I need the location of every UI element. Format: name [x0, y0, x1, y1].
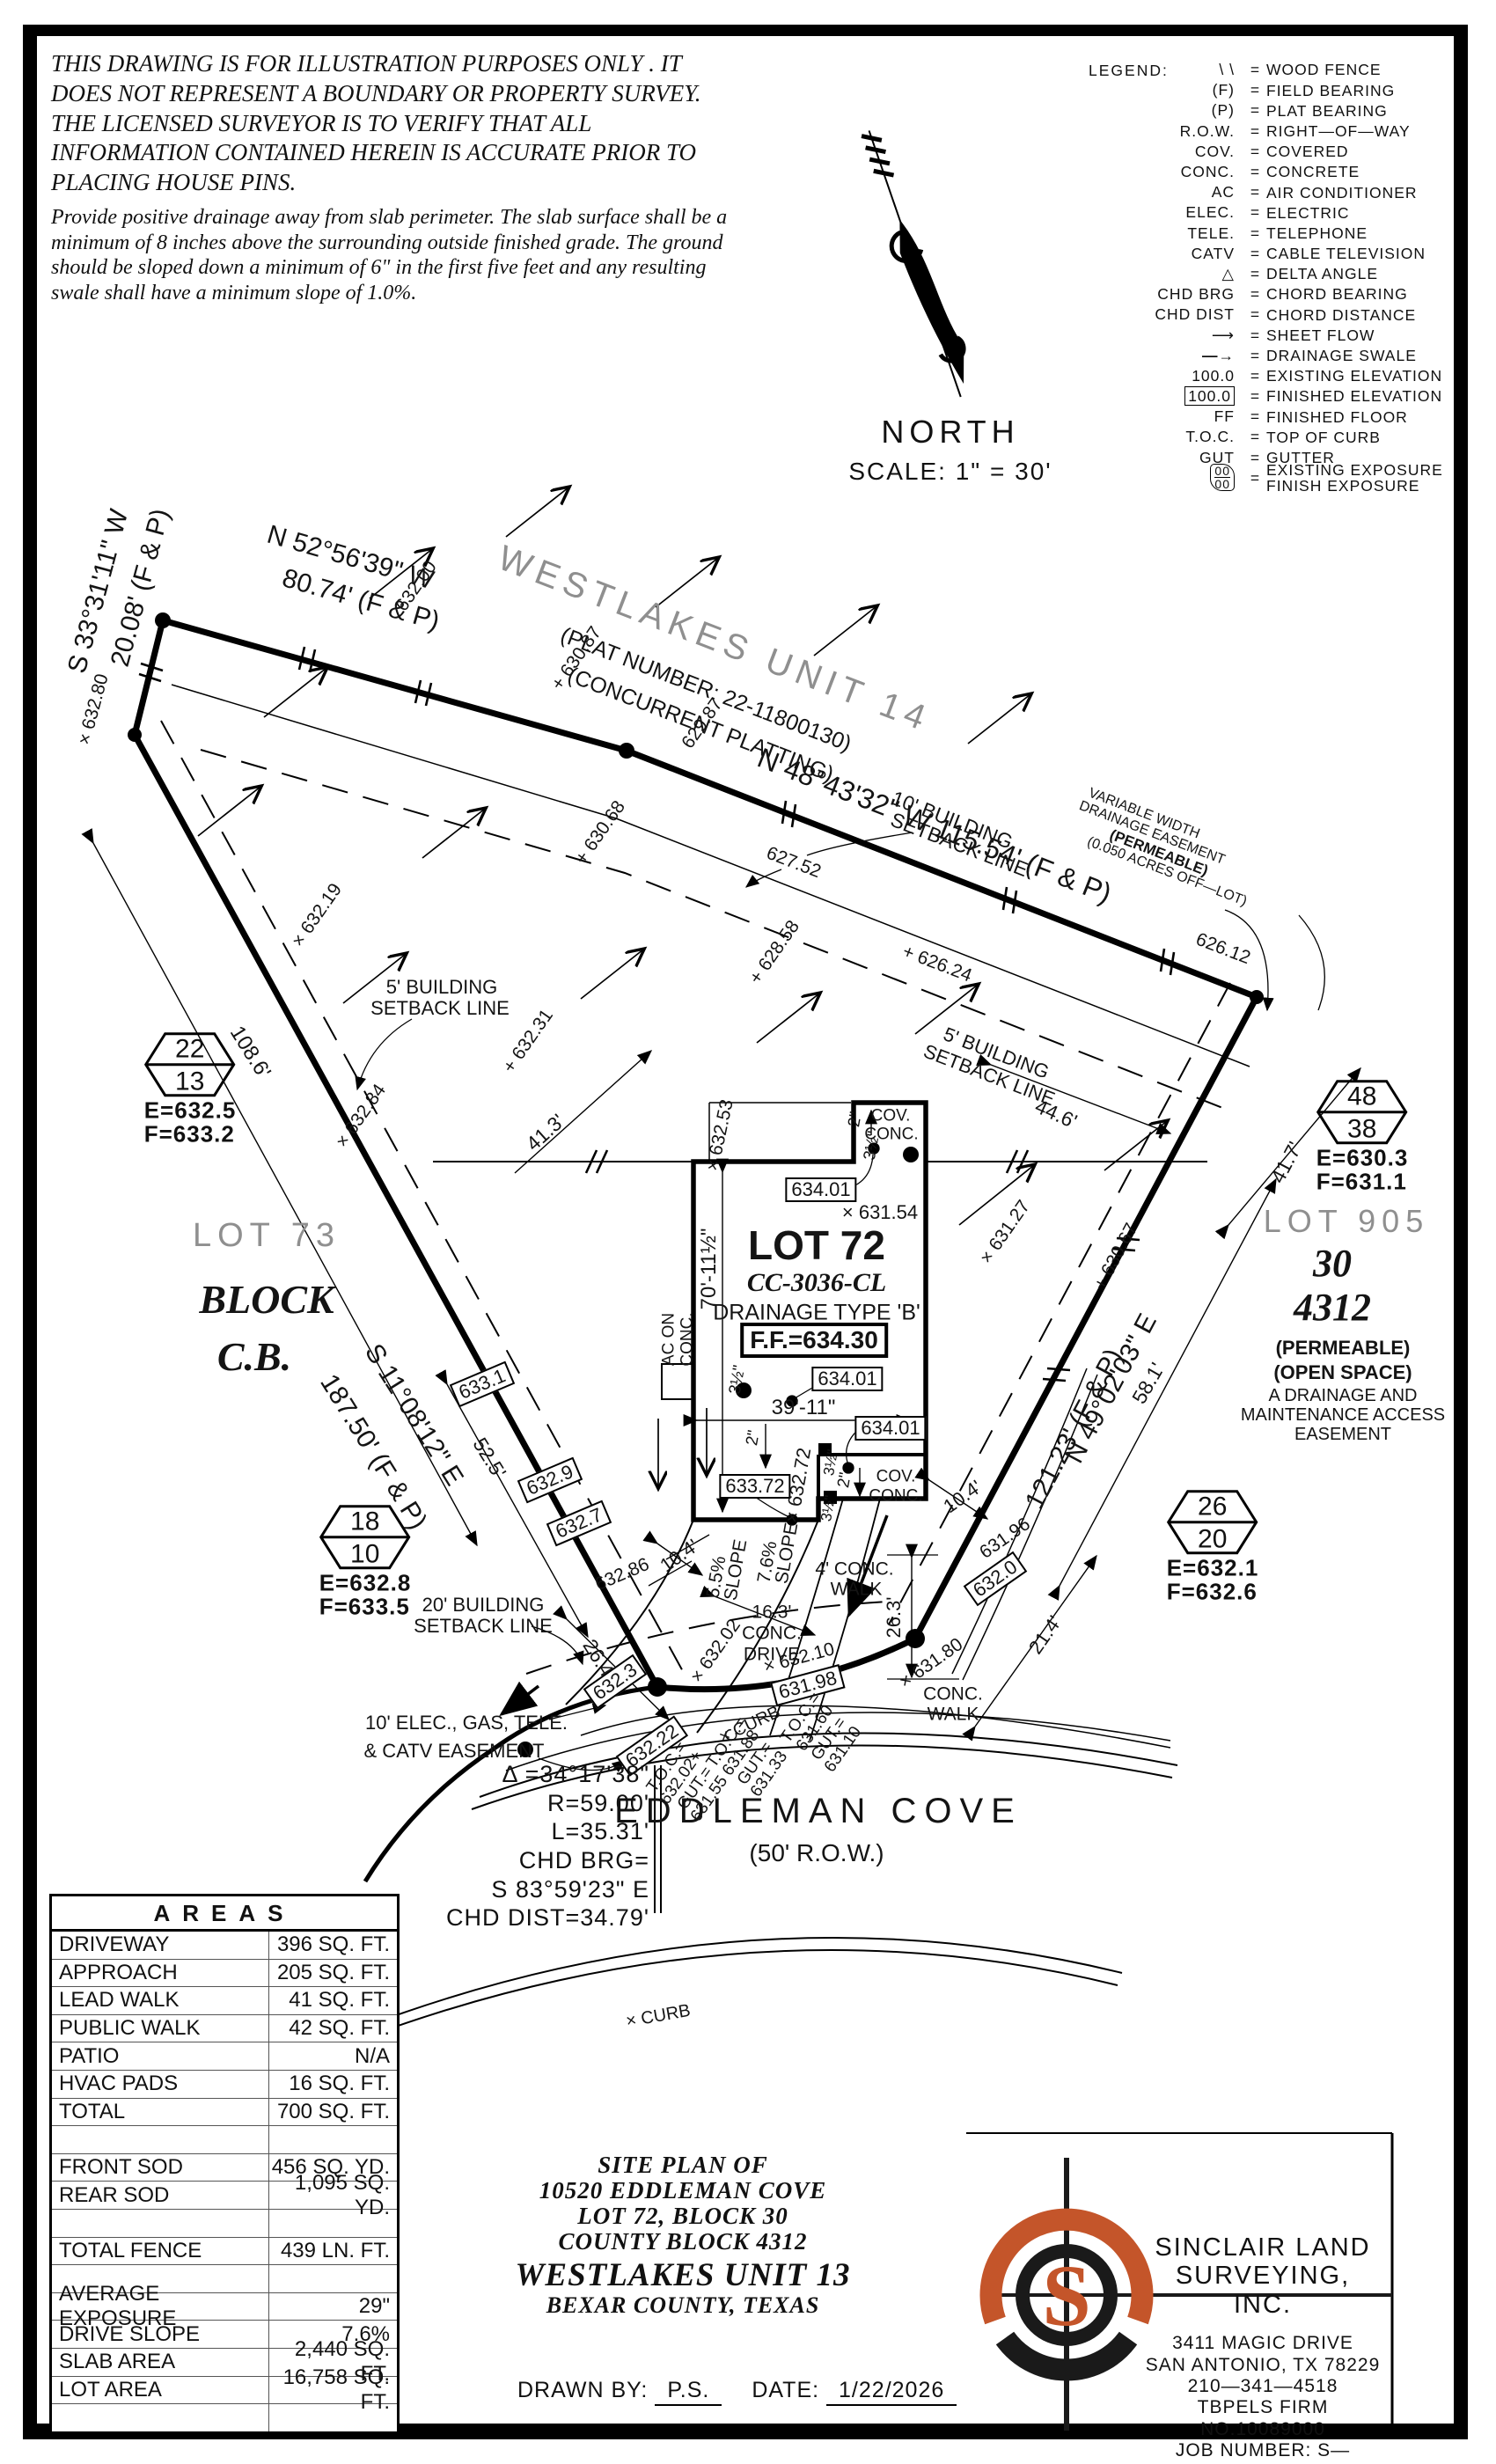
legend-row: (F)=FIELD BEARING: [1087, 80, 1474, 100]
area-label: SLAB AREA: [52, 2349, 269, 2376]
legend-row: (P)=PLAT BEARING: [1087, 100, 1474, 121]
legend-symbol: R.O.W.: [1087, 122, 1243, 141]
plan-label: A DRAINAGE AND: [1269, 1387, 1418, 1404]
title-block-line: BEXAR COUNTY, TEXAS: [458, 2293, 908, 2318]
drawn-by-value: P.S.: [655, 2378, 722, 2406]
areas-table-row: PATION/A: [52, 2042, 397, 2071]
exposure-hexagon-marker: 2213E=632.5F=633.2: [144, 1032, 237, 1148]
legend-symbol: (P): [1087, 101, 1243, 120]
area-value: 439 LN. FT.: [269, 2239, 397, 2263]
legend-symbol: FF: [1087, 407, 1243, 426]
company-address-line: TBPELS FIRM NO.10089000: [1144, 2397, 1382, 2440]
plan-label: × 631.54: [842, 1203, 918, 1222]
legend-row: 100.0=EXISTING ELEVATION: [1087, 366, 1474, 386]
areas-table-title: AREAS: [52, 1896, 397, 1932]
curve-data-line: CHD DIST=34.79': [370, 1905, 649, 1932]
legend-label: TOP OF CURB: [1266, 429, 1381, 445]
svg-text:13: 13: [175, 1067, 204, 1096]
legend-label: CHORD BEARING: [1266, 286, 1408, 302]
plan-label: 2": [846, 1111, 865, 1128]
svg-text:20: 20: [1198, 1525, 1227, 1554]
legend-label: TELEPHONE: [1266, 225, 1368, 241]
area-label: LEAD WALK: [52, 1987, 269, 2014]
legend-symbol: ELEC.: [1087, 203, 1243, 222]
plan-label: COV.: [876, 1469, 916, 1485]
plan-label: 4312: [1294, 1288, 1371, 1327]
title-block-line: SITE PLAN OF: [458, 2152, 908, 2178]
legend-label: WOOD FENCE: [1266, 62, 1382, 77]
legend-symbol: CONC.: [1087, 163, 1243, 181]
company-name-line2: SURVEYING, INC.: [1144, 2262, 1382, 2319]
plan-label: 633.72: [719, 1474, 790, 1499]
plan-label: 10' ELEC., GAS, TELE.: [365, 1713, 568, 1733]
legend-symbol: ⟶: [1087, 326, 1243, 345]
area-label: REAR SOD: [52, 2182, 269, 2209]
curve-data-line: L=35.31': [370, 1819, 649, 1845]
legend-label: FIELD BEARING: [1266, 83, 1395, 99]
area-label: [52, 2210, 269, 2237]
date-label: DATE:: [752, 2378, 819, 2402]
curve-data-line: Δ =34°17'38": [370, 1762, 649, 1788]
company-block: SINCLAIR LAND SURVEYING, INC. 3411 MAGIC…: [1144, 2233, 1382, 2464]
legend-label: DRAINAGE SWALE: [1266, 348, 1417, 363]
plan-label: 16.3': [752, 1603, 792, 1622]
plan-label: AC ON: [661, 1313, 678, 1366]
curve-data-line: S 83°59'23" E: [370, 1877, 649, 1903]
plan-label: 39'-11": [772, 1397, 836, 1419]
area-value: 205 SQ. FT.: [269, 1961, 397, 1985]
svg-text:26: 26: [1198, 1492, 1227, 1522]
curve-data-line: R=59.00': [370, 1791, 649, 1817]
company-address-line: 3411 MAGIC DRIVE: [1144, 2333, 1382, 2354]
area-label: HVAC PADS: [52, 2071, 269, 2098]
plan-label: 30: [1313, 1244, 1352, 1283]
plan-label: MAINTENANCE ACCESS: [1241, 1406, 1445, 1424]
legend-label: AIR CONDITIONER: [1266, 185, 1418, 201]
legend-row: R.O.W.=RIGHT—OF—WAY: [1087, 121, 1474, 142]
legend-symbol: 100.0: [1087, 367, 1243, 385]
plan-label: 3½": [821, 1448, 840, 1477]
exposure-hexagon-marker: 4838E=630.3F=631.1: [1316, 1080, 1409, 1195]
curve-data-line: CHD BRG=: [370, 1848, 649, 1874]
drawn-by-label: DRAWN BY:: [517, 2378, 648, 2402]
legend-row: CATV=CABLE TELEVISION: [1087, 244, 1474, 264]
legend-symbol: AC: [1087, 183, 1243, 202]
company-address-line: JOB NUMBER: S—202685396: [1144, 2440, 1382, 2464]
legend-row: CHD BRG=CHORD BEARING: [1087, 284, 1474, 304]
legend-row: 0000=EXISTING EXPOSURE FINISH EXPOSURE: [1087, 468, 1474, 488]
legend-label: ELECTRIC: [1266, 205, 1350, 221]
plan-label: SETBACK LINE: [370, 999, 510, 1018]
legend-label: CABLE TELEVISION: [1266, 246, 1426, 261]
disclaimer-paragraph-2: Provide positive drainage away from slab…: [51, 205, 746, 306]
legend-symbol: 0000: [1087, 464, 1243, 493]
plan-label: (50' R.O.W.): [749, 1841, 884, 1866]
areas-table-row: TOTAL FENCE439 LN. FT.: [52, 2238, 397, 2266]
plan-label: 4' CONC.: [815, 1560, 893, 1579]
area-value: 396 SQ. FT.: [269, 1932, 397, 1957]
legend-label: CHORD DISTANCE: [1266, 307, 1416, 323]
area-value: N/A: [269, 2044, 397, 2069]
legend-row: CHD DIST=CHORD DISTANCE: [1087, 304, 1474, 325]
date-value: 1/22/2026: [826, 2378, 957, 2406]
areas-table-row: LEAD WALK41 SQ. FT.: [52, 1987, 397, 2015]
area-label: TOTAL: [52, 2099, 269, 2126]
plan-label: LOT 73: [193, 1219, 341, 1252]
area-value: 1,095 SQ. YD.: [269, 2171, 397, 2220]
areas-table-row: APPROACH205 SQ. FT.: [52, 1960, 397, 1988]
legend-title: LEGEND:: [1089, 62, 1169, 80]
disclaimer: THIS DRAWING IS FOR ILLUSTRATION PURPOSE…: [51, 49, 746, 313]
plan-label: 3½": [818, 1494, 838, 1522]
legend-symbol: CATV: [1087, 245, 1243, 263]
plan-label: 634.01: [811, 1367, 883, 1391]
exposure-hexagon-marker: 1810E=632.8F=633.5: [319, 1505, 412, 1620]
legend-row: FF=FINISHED FLOOR: [1087, 407, 1474, 427]
area-label: PATIO: [52, 2042, 269, 2070]
legend-label: DELTA ANGLE: [1266, 266, 1378, 282]
legend-row: 100.0=FINISHED ELEVATION: [1087, 386, 1474, 407]
legend-symbol: CHD DIST: [1087, 305, 1243, 324]
legend-row: ELEC.=ELECTRIC: [1087, 202, 1474, 223]
legend-label: FINISHED ELEVATION: [1266, 388, 1442, 404]
area-value: 42 SQ. FT.: [269, 2016, 397, 2041]
area-value: 41 SQ. FT.: [269, 1988, 397, 2013]
title-block-line: WESTLAKES UNIT 13: [458, 2258, 908, 2293]
legend: LEGEND: \ \=WOOD FENCE(F)=FIELD BEARING(…: [1087, 60, 1474, 488]
company-address-line: 210—341—4518: [1144, 2376, 1382, 2397]
area-label: TOTAL FENCE: [52, 2238, 269, 2265]
legend-label: FINISHED FLOOR: [1266, 409, 1408, 425]
plan-label: DRAINAGE TYPE 'B': [713, 1302, 920, 1324]
plan-label: CONC.: [923, 1685, 983, 1704]
areas-table-row: AVERAGE EXPOSURE29": [52, 2293, 397, 2321]
legend-label: CONCRETE: [1266, 164, 1360, 180]
plan-label: (OPEN SPACE): [1273, 1363, 1412, 1382]
svg-text:38: 38: [1347, 1115, 1376, 1144]
site-plan-page: S THIS DRAWING IS FOR ILLUSTRATION PURPO…: [0, 0, 1496, 2464]
legend-label: PLAT BEARING: [1266, 103, 1388, 119]
area-value: 700 SQ. FT.: [269, 2100, 397, 2124]
svg-text:S: S: [1042, 2247, 1091, 2344]
areas-table-row: HVAC PADS16 SQ. FT.: [52, 2071, 397, 2099]
legend-label: RIGHT—OF—WAY: [1266, 123, 1411, 139]
plan-label: COV.: [871, 1108, 911, 1125]
plan-label: LOT 72: [748, 1225, 885, 1265]
plan-label: C.B.: [217, 1337, 291, 1377]
plan-label: 70'-11½": [699, 1228, 720, 1310]
legend-symbol: △: [1087, 265, 1243, 283]
svg-text:10: 10: [350, 1540, 379, 1569]
wood-fence-ticks: [139, 647, 1174, 1445]
plan-label: WALK: [831, 1580, 883, 1599]
legend-symbol: (F): [1087, 81, 1243, 99]
area-value: 16,758 SQ. FT.: [269, 2365, 397, 2415]
area-label: [52, 2404, 269, 2431]
legend-row: ⟶=SHEET FLOW: [1087, 325, 1474, 345]
area-label: DRIVEWAY: [52, 1932, 269, 1959]
plan-label: WALK: [928, 1705, 979, 1724]
plan-label: BLOCK: [199, 1280, 334, 1320]
title-block-line: LOT 72, BLOCK 30: [458, 2204, 908, 2229]
area-value: 16 SQ. FT.: [269, 2072, 397, 2096]
legend-row: AC=AIR CONDITIONER: [1087, 182, 1474, 202]
plan-label: LOT 905: [1264, 1206, 1429, 1237]
legend-label: COVERED: [1266, 143, 1349, 159]
company-address-line: SAN ANTONIO, TX 78229: [1144, 2355, 1382, 2376]
area-label: PUBLIC WALK: [52, 2015, 269, 2042]
legend-symbol: 100.0: [1087, 387, 1243, 406]
plan-label: 2": [835, 1471, 854, 1489]
area-label: [52, 2126, 269, 2153]
legend-label: SHEET FLOW: [1266, 327, 1375, 343]
scale-label: SCALE: 1" = 30': [818, 458, 1082, 486]
plan-label: CONC.: [742, 1624, 802, 1643]
area-label: DRIVE SLOPE: [52, 2321, 269, 2348]
area-label: FRONT SOD: [52, 2154, 269, 2182]
plan-label: (PERMEABLE): [1276, 1338, 1411, 1358]
plan-label: SETBACK LINE: [414, 1617, 553, 1636]
title-block: SITE PLAN OF10520 EDDLEMAN COVELOT 72, B…: [458, 2152, 908, 2318]
legend-symbol: TELE.: [1087, 224, 1243, 243]
legend-row: CONC.=CONCRETE: [1087, 162, 1474, 182]
svg-text:48: 48: [1347, 1082, 1376, 1111]
disclaimer-paragraph-1: THIS DRAWING IS FOR ILLUSTRATION PURPOSE…: [51, 49, 746, 198]
areas-table-row: LOT AREA16,758 SQ. FT.: [52, 2377, 397, 2405]
lot-boundary: [135, 620, 1257, 1690]
areas-table-row: PUBLIC WALK42 SQ. FT.: [52, 2015, 397, 2043]
legend-symbol: COV.: [1087, 143, 1243, 161]
areas-table-row: REAR SOD1,095 SQ. YD.: [52, 2182, 397, 2210]
plan-label: 5' BUILDING: [386, 978, 497, 997]
area-value: 29": [269, 2294, 397, 2319]
areas-table: AREAS DRIVEWAY396 SQ. FT.APPROACH205 SQ.…: [49, 1894, 400, 2434]
legend-symbol: T.O.C.: [1087, 428, 1243, 446]
legend-symbol: CHD BRG: [1087, 285, 1243, 304]
company-name-line1: SINCLAIR LAND: [1144, 2233, 1382, 2262]
svg-text:18: 18: [350, 1507, 379, 1536]
legend-symbol: —→: [1087, 347, 1243, 365]
plan-label: 634.01: [854, 1416, 926, 1441]
exposure-hexagon-marker: 2620E=632.1F=632.6: [1167, 1490, 1259, 1605]
north-label: NORTH: [818, 414, 1082, 451]
plan-label: F.F.=634.30: [740, 1323, 888, 1358]
plan-label: 20' BUILDING: [422, 1595, 545, 1615]
plan-label: 634.01: [785, 1177, 856, 1202]
areas-table-row: [52, 2126, 397, 2154]
plan-label: & CATV EASEMENT: [364, 1742, 545, 1761]
plan-label: CONC.: [679, 1312, 696, 1366]
areas-table-row: TOTAL700 SQ. FT.: [52, 2099, 397, 2127]
plan-label: CC-3036-CL: [747, 1270, 886, 1296]
plan-label: 2": [744, 1429, 763, 1447]
legend-label: EXISTING ELEVATION: [1266, 368, 1442, 384]
north-arrow-icon: [853, 124, 979, 402]
plan-label: 26.3': [884, 1596, 904, 1638]
north-scale-block: NORTH SCALE: 1" = 30': [818, 414, 1082, 486]
legend-label: EXISTING EXPOSURE FINISH EXPOSURE: [1266, 462, 1443, 495]
title-block-line: COUNTY BLOCK 4312: [458, 2229, 908, 2255]
area-label: LOT AREA: [52, 2377, 269, 2404]
legend-row: TELE.=TELEPHONE: [1087, 224, 1474, 244]
area-label: APPROACH: [52, 1960, 269, 1987]
drawn-by-line: DRAWN BY: P.S. DATE: 1/22/2026: [517, 2378, 979, 2403]
title-block-line: 10520 EDDLEMAN COVE: [458, 2178, 908, 2204]
plan-label: CONC.: [869, 1488, 922, 1505]
plan-label: EASEMENT: [1294, 1426, 1391, 1443]
legend-row: COV.=COVERED: [1087, 142, 1474, 162]
areas-table-row: DRIVEWAY396 SQ. FT.: [52, 1932, 397, 1960]
curve-data-block: Δ =34°17'38"R=59.00'L=35.31'CHD BRG=S 83…: [370, 1762, 649, 1934]
legend-row: △=DELTA ANGLE: [1087, 264, 1474, 284]
legend-row: T.O.C.=TOP OF CURB: [1087, 427, 1474, 447]
svg-text:22: 22: [175, 1035, 204, 1064]
legend-row: —→=DRAINAGE SWALE: [1087, 346, 1474, 366]
area-label: AVERAGE EXPOSURE: [52, 2293, 269, 2321]
